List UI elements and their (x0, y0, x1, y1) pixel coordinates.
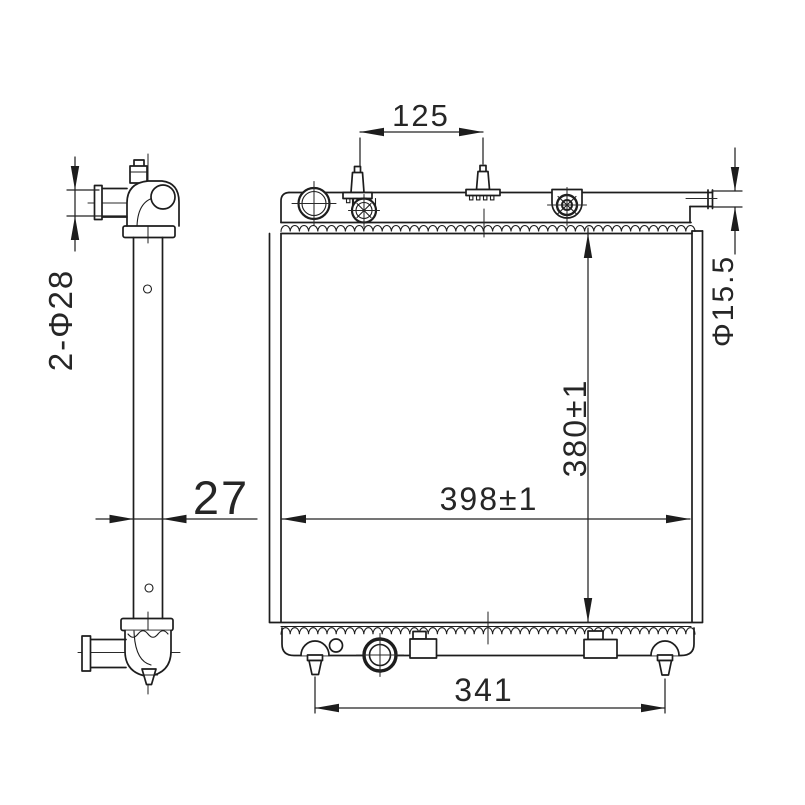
arrowhead (584, 234, 592, 259)
technical-drawing-page: 125 2-Φ28 27 398±1 (0, 0, 805, 805)
dim-pin-spacing-bottom: 341 (315, 672, 665, 713)
top-cap (130, 166, 147, 183)
dim-depth: 27 (96, 471, 257, 524)
side-bottom-elbow (82, 619, 173, 685)
dim-label-341: 341 (454, 672, 513, 708)
column-hole-upper (144, 285, 152, 293)
top-pin-right (466, 166, 500, 200)
side-column (134, 238, 163, 619)
front-view (270, 166, 718, 677)
arrowhead (110, 515, 134, 523)
top-pin-left (343, 167, 372, 203)
arrowhead (584, 598, 592, 622)
dim-label-380: 380±1 (557, 379, 593, 478)
top-flange (123, 226, 175, 238)
arrowhead (459, 128, 483, 136)
outlet-pipe (686, 190, 717, 223)
drain-plug (357, 634, 404, 677)
sensor-boss (548, 188, 587, 226)
bottom-pin-left (301, 641, 329, 675)
side-view (78, 154, 180, 694)
dim-label-125: 125 (392, 98, 450, 133)
arrowhead (360, 128, 384, 136)
dim-label-27: 27 (193, 471, 249, 524)
bottom-port-bead (82, 636, 91, 671)
dim-label-phi155: Φ15.5 (707, 255, 740, 347)
arrowhead (666, 515, 690, 523)
arrowhead (731, 207, 739, 231)
bottom-flange (121, 619, 173, 631)
arrowhead (282, 515, 306, 523)
radiator-drawing: 125 2-Φ28 27 398±1 (0, 0, 805, 805)
column-hole-lower (145, 584, 153, 592)
tank-left-edge (281, 193, 289, 223)
bottom-nub (142, 669, 156, 685)
dim-label-2-phi28: 2-Φ28 (42, 269, 79, 371)
bottom-bracket-right (584, 631, 617, 658)
arrowhead (71, 166, 79, 190)
dim-outlet-diameter: Φ15.5 (707, 148, 742, 347)
arrowhead (731, 167, 739, 191)
dim-pin-spacing-top: 125 (360, 98, 483, 166)
arrowhead (163, 515, 187, 523)
dim-core-width: 398±1 (282, 481, 690, 523)
fin-strip-top (281, 225, 695, 231)
side-top-elbow (95, 160, 180, 238)
dim-core-height: 380±1 (557, 228, 593, 622)
bottom-bracket-left (410, 632, 437, 659)
dim-label-398: 398±1 (440, 481, 539, 517)
arrowhead (641, 704, 665, 712)
bottom-pin-right (651, 641, 679, 675)
filler-cap (292, 182, 336, 226)
bottom-tank-hole (330, 639, 343, 652)
top-elbow-bore (151, 185, 175, 209)
arrowhead (315, 704, 339, 712)
core (270, 225, 703, 634)
arrowhead (71, 216, 79, 240)
